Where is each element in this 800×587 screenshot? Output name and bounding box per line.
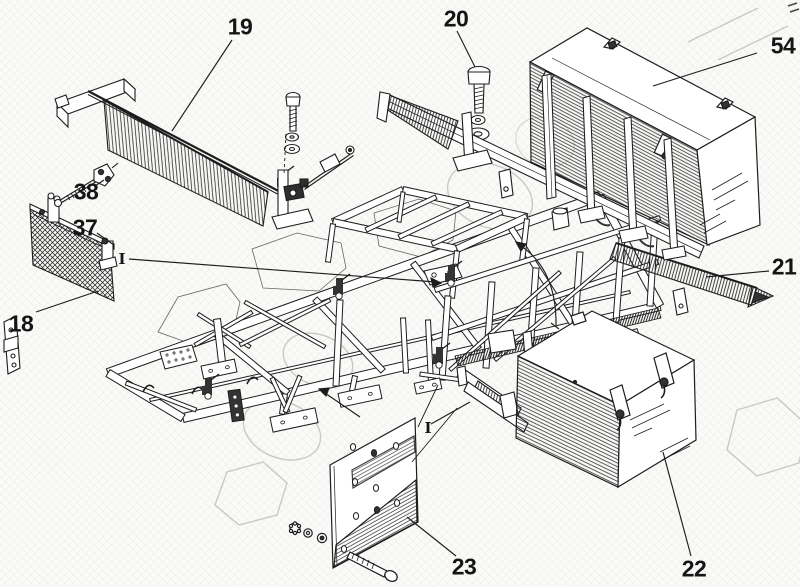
part-label-22: 22	[682, 556, 707, 583]
part-label-37: 37	[73, 215, 98, 242]
part-label-54: 54	[771, 33, 796, 60]
part-23-plate	[289, 418, 418, 583]
part-label-21: 21	[772, 254, 797, 281]
view-marker-I-right: I	[424, 419, 431, 437]
part-label-18: 18	[9, 311, 34, 338]
part-label-23: 23	[452, 554, 477, 581]
corner-marks	[788, 3, 799, 12]
view-marker-I-left: I	[118, 250, 125, 268]
parts-diagram-page: 19 20 54 38 37 18 21 23 22 I I	[0, 0, 800, 587]
part-label-38: 38	[74, 179, 99, 206]
part-19-plank	[55, 79, 354, 229]
part-label-20: 20	[444, 6, 469, 33]
parts-diagram-drawing	[0, 0, 800, 587]
part-label-19: 19	[228, 14, 253, 41]
